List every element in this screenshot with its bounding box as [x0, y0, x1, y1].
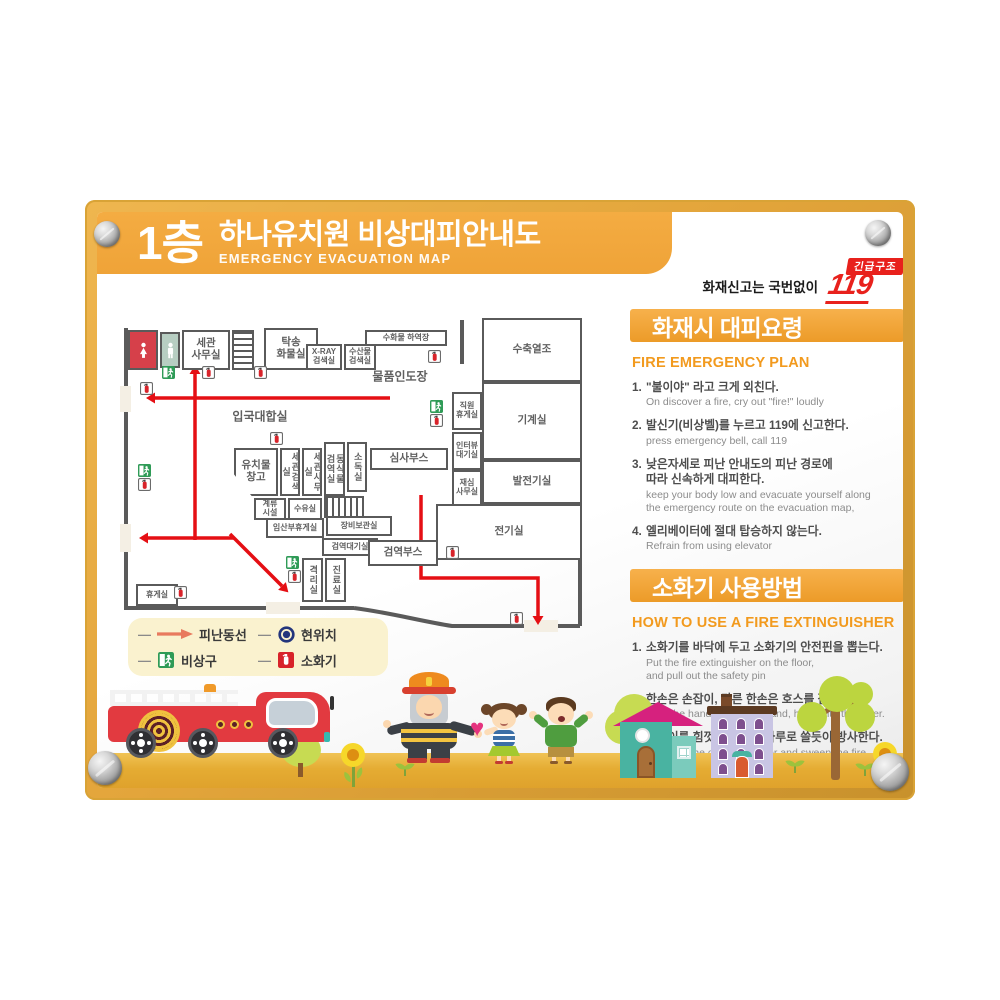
legend-dash: — [138, 627, 151, 642]
title-block: 하나유치원 비상대피안내도 EMERGENCY EVACUATION MAP [219, 220, 541, 266]
fire-extinguisher-icon [138, 478, 151, 491]
room-interview-wait: 인터뷰 대기실 [452, 432, 482, 470]
room-treatment-room: 진료실 [325, 558, 346, 602]
room-customs-office-mid: 세관사무실 [302, 448, 322, 496]
room-equipment-room: 장비보관실 [326, 516, 392, 536]
emergency-exit-icon [430, 400, 443, 413]
fire-extinguisher-icon [254, 366, 267, 379]
room-quarantine-animal: 동식물 검역실 [324, 442, 345, 496]
fire-extinguisher-icon [430, 414, 443, 427]
emergency-exit-icon [138, 464, 151, 477]
room-isolation-room: 격리실 [302, 558, 323, 602]
legend-dash: — [138, 653, 151, 668]
evacuation-map-poster: 1층 하나유치원 비상대피안내도 EMERGENCY EVACUATION MA… [0, 0, 1000, 1000]
fire-extinguisher-icon [277, 651, 295, 669]
room-customs-search: 세관검색실 [280, 448, 300, 496]
room-baggage-unload: 수화물 하역장 [365, 330, 447, 346]
house-illustration [620, 722, 696, 778]
fire-plan-list: 1."불이야" 라고 크게 외친다.On discover a fire, cr… [630, 380, 903, 553]
room-disinfect-room: 소독실 [347, 442, 367, 492]
heart-icon: ♥ [470, 717, 484, 741]
emergency-exit-icon [286, 556, 299, 569]
floor-label: 1층 [137, 220, 203, 266]
legend-label: 현위치 [301, 625, 337, 644]
header-banner: 1층 하나유치원 비상대피안내도 EMERGENCY EVACUATION MA… [97, 212, 672, 274]
fire-extinguisher-icon [270, 432, 283, 445]
room-nursing-room: 수유실 [288, 498, 322, 520]
fire-extinguisher-icon [446, 546, 459, 559]
room-seafood-room: 수산물 검색실 [344, 344, 376, 370]
room-customs-office-top: 세관 사무실 [182, 330, 230, 370]
room-heat-tank: 수축열조 [482, 318, 582, 382]
screw-top-left [94, 221, 120, 247]
room-stairs-top [232, 330, 254, 370]
screw-bottom-right [871, 753, 909, 791]
floor-plan: 세관 사무실탁송 화물실X-RAY 검색실수산물 검색실수화물 하역장수축열조기… [118, 312, 618, 652]
legend-dash: — [258, 627, 271, 642]
room-inspection-booth: 심사부스 [370, 448, 448, 470]
room-rest-room: 휴게실 [136, 584, 178, 606]
emergency-call-block: 화재신고는 국번없이 긴급구조 119 [630, 258, 903, 302]
fire-extinguisher-icon [510, 612, 523, 625]
room-machine-room: 기계실 [482, 382, 582, 460]
firefighter-illustration [385, 670, 482, 764]
legend-dash: — [258, 653, 271, 668]
apartment-illustration [711, 700, 773, 778]
fire-plan-subheading: FIRE EMERGENCY PLAN [632, 355, 903, 371]
room-toilet-men [160, 332, 180, 368]
rescue-119-logo: 긴급구조 119 [826, 258, 903, 302]
screw-bottom-left [88, 751, 122, 785]
current-location-icon [277, 625, 295, 643]
instruction-item: 4.엘리베이터에 절대 탑승하지 않는다.Refrain from using … [632, 524, 903, 553]
room-toilet-women [128, 330, 158, 370]
instruction-item: 3.낮은자세로 피난 안내도의 피난 경로에 따라 신속하게 대피한다.keep… [632, 457, 903, 515]
number-119: 119 [825, 271, 874, 304]
legend-label: 피난동선 [199, 625, 247, 644]
call-label: 화재신고는 국번없이 [702, 276, 818, 302]
page-subtitle: EMERGENCY EVACUATION MAP [219, 251, 541, 266]
fire-plan-heading: 화재시 대피요령 [630, 309, 903, 342]
fire-extinguisher-icon [140, 382, 153, 395]
fire-extinguisher-icon [174, 586, 187, 599]
legend-item: —피난동선 [138, 625, 258, 644]
fire-extinguisher-icon [428, 350, 441, 363]
map-legend: —피난동선—현위치—비상구—소화기 [128, 618, 388, 676]
room-staff-lounge: 직원 휴게실 [452, 392, 482, 430]
emergency-exit-icon [157, 651, 175, 669]
board-frame: 1층 하나유치원 비상대피안내도 EMERGENCY EVACUATION MA… [85, 200, 915, 800]
board-panel: 1층 하나유치원 비상대피안내도 EMERGENCY EVACUATION MA… [97, 212, 903, 788]
legend-item: —비상구 [138, 651, 258, 670]
extinguisher-heading: 소화기 사용방법 [630, 569, 903, 602]
legend-label: 비상구 [181, 651, 217, 670]
route-arrow-icon [157, 625, 193, 643]
page-title: 하나유치원 비상대피안내도 [219, 220, 541, 250]
boy-illustration [531, 695, 591, 764]
fire-extinguisher-icon [202, 366, 215, 379]
girl-illustration: ♥ [478, 697, 530, 764]
legend-item: —현위치 [258, 625, 378, 644]
legend-item: —소화기 [258, 651, 378, 670]
room-mooring: 계류 시설 [254, 498, 286, 520]
room-quarantine-booth: 검역부스 [368, 540, 438, 566]
emergency-exit-icon [162, 366, 175, 379]
room-pregnant-lounge: 임산부휴게실 [266, 518, 324, 538]
sunflower-illustration [337, 741, 369, 787]
fire-truck-illustration [108, 680, 334, 760]
screw-top-right [865, 220, 891, 246]
room-xray-room: X-RAY 검색실 [306, 344, 342, 370]
room-generator-room: 발전기실 [482, 460, 582, 504]
room-review-office: 재심 사무실 [452, 470, 482, 506]
area-label: 물품인도장 [372, 368, 427, 385]
legend-label: 소화기 [301, 651, 337, 670]
fire-extinguisher-icon [288, 570, 301, 583]
area-label: 입국대합실 [232, 408, 287, 425]
room-stairs-mid [324, 496, 364, 518]
instruction-item: 2.발신기(비상벨)를 누르고 119에 신고한다.press emergenc… [632, 418, 903, 447]
extinguisher-subheading: HOW TO USE A FIRE EXTINGUISHER [632, 615, 903, 631]
instruction-item: 1."불이야" 라고 크게 외친다.On discover a fire, cr… [632, 380, 903, 409]
